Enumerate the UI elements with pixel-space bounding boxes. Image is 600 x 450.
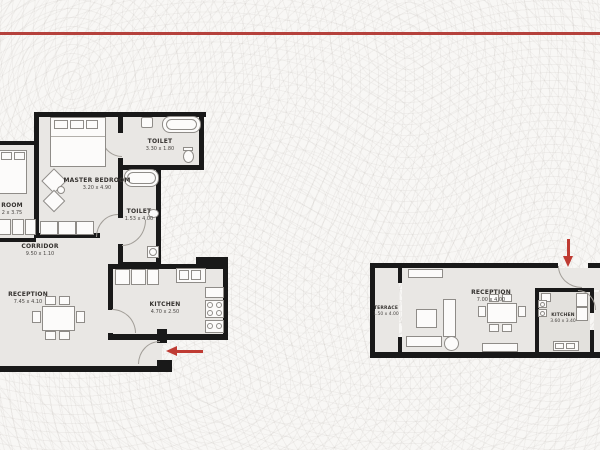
room-name: RECEPTION	[463, 289, 519, 297]
wall-segment	[398, 337, 402, 353]
fridge-icon	[576, 293, 588, 307]
room-floor-partial-right	[594, 292, 600, 353]
room-name: TERRACE	[369, 306, 403, 312]
tv-console-icon	[406, 336, 442, 347]
sink-basin	[555, 343, 564, 349]
coffee-table-icon	[416, 309, 437, 328]
chair-icon	[502, 324, 512, 332]
sink-basin	[566, 343, 575, 349]
room-dims: 1.50 x 4.00	[369, 312, 403, 318]
sofa-icon	[443, 299, 456, 337]
chair-icon	[489, 324, 499, 332]
burner	[540, 302, 545, 307]
wall-segment	[590, 330, 594, 352]
chair-icon	[478, 306, 486, 317]
wall-segment	[535, 288, 539, 352]
floorplan-canvas: MASTER BEDROOM 3.20 x 4.90 TOILET 3.30 x…	[0, 0, 600, 450]
room-dims: 7.00 x 4.00	[463, 297, 519, 303]
room-dims: 3.60 x 3.40	[541, 319, 585, 325]
wall-segment	[588, 263, 600, 268]
wall-segment	[370, 352, 600, 358]
wall-segment	[398, 268, 402, 283]
room-label-reception: RECEPTION 7.00 x 4.00	[463, 289, 519, 303]
room-label-kitchen: KITCHEN 3.60 x 3.40	[541, 313, 585, 324]
shelf-icon	[408, 269, 443, 278]
round-chair-icon	[444, 336, 459, 351]
chair-icon	[518, 306, 526, 317]
floorplan-right-unit: TERRACE 1.50 x 4.00 RECEPTION 7.00 x 4.0…	[0, 0, 600, 450]
room-label-terrace: TERRACE 1.50 x 4.00	[369, 306, 403, 317]
dining-table-icon	[487, 303, 517, 323]
tv-console-icon	[482, 343, 518, 352]
entrance-arrow-down	[563, 256, 573, 267]
